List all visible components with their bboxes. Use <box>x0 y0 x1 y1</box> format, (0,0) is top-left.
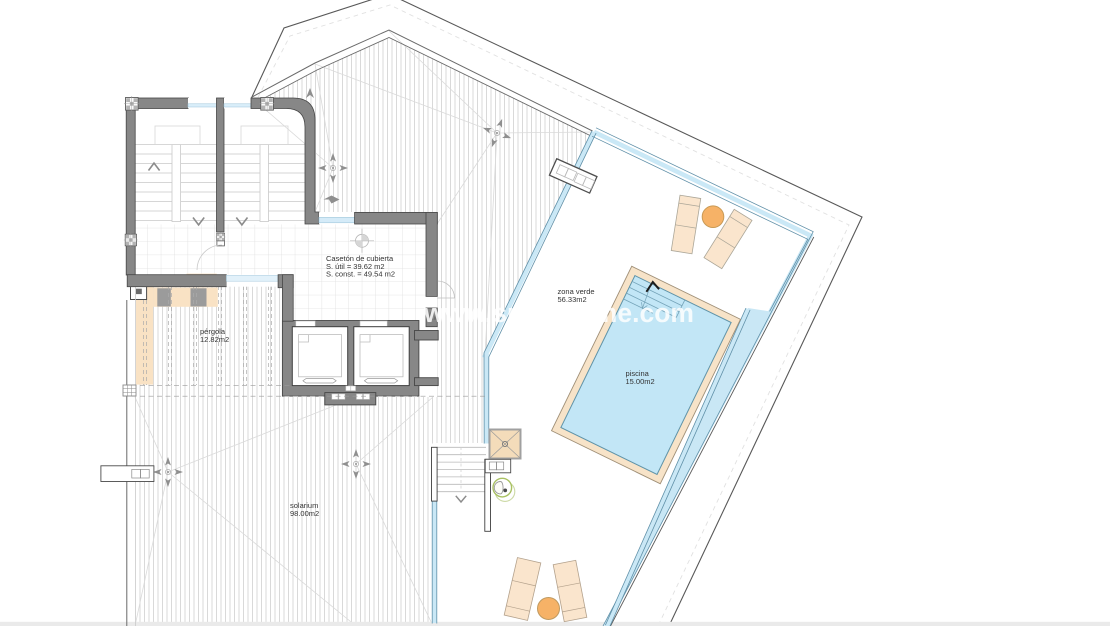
svg-text:www.spainhome.com: www.spainhome.com <box>423 298 694 328</box>
svg-text:12.82m2: 12.82m2 <box>200 335 229 344</box>
svg-text:15.00m2: 15.00m2 <box>626 377 655 386</box>
svg-text:S. const. = 49.54 m2: S. const. = 49.54 m2 <box>326 270 395 279</box>
svg-text:98.00m2: 98.00m2 <box>290 509 319 518</box>
